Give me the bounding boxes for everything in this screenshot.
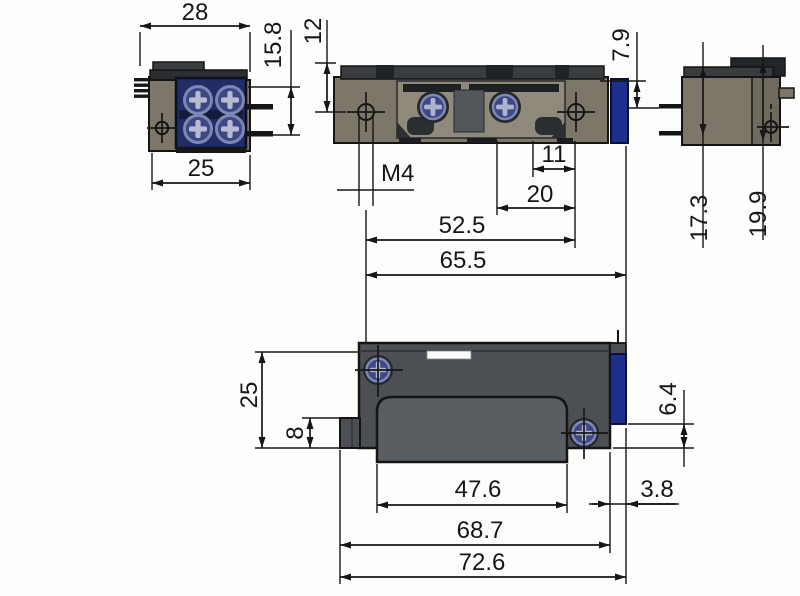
faceplate-strip bbox=[610, 354, 626, 424]
top-band-block bbox=[376, 65, 394, 79]
screw-icon bbox=[489, 91, 521, 123]
terminal-screw-icon bbox=[217, 87, 244, 114]
bottom-tick bbox=[467, 138, 497, 143]
center-block bbox=[454, 90, 484, 132]
lead-pin bbox=[659, 131, 683, 136]
dim-label-20: 20 bbox=[527, 181, 554, 208]
drawing-svg: 28 15.8 25 bbox=[0, 0, 800, 596]
terminal-screw-icon bbox=[185, 116, 212, 143]
dim-label-7-9: 7.9 bbox=[608, 28, 635, 61]
dim-label-11: 11 bbox=[542, 141, 567, 168]
dim-label-65-5: 65.5 bbox=[440, 247, 487, 274]
dim-label-25-top: 25 bbox=[188, 155, 215, 182]
dim-label-68-7: 68.7 bbox=[457, 517, 504, 544]
thread-label-m4: M4 bbox=[381, 160, 414, 187]
lead-pin bbox=[246, 104, 273, 110]
dim-label-52-5: 52.5 bbox=[439, 212, 486, 239]
faceplate-strip bbox=[611, 79, 628, 143]
dim-label-12: 12 bbox=[300, 18, 327, 45]
screw-icon bbox=[417, 91, 449, 123]
side-tab bbox=[779, 88, 794, 98]
top-view bbox=[334, 65, 628, 143]
terminal-screw-icon bbox=[217, 116, 244, 143]
panel-bar bbox=[403, 84, 461, 92]
bottom-tick bbox=[399, 138, 421, 143]
connector-front-view bbox=[134, 62, 273, 153]
dim-label-25-front: 25 bbox=[236, 382, 263, 409]
dim-label-47-6: 47.6 bbox=[455, 476, 502, 503]
right-section bbox=[752, 78, 779, 144]
dim-label-19-9: 19.9 bbox=[745, 191, 772, 238]
dim-label-17-3: 17.3 bbox=[686, 195, 713, 242]
left-lip bbox=[340, 418, 360, 448]
dim-label-6-4: 6.4 bbox=[655, 382, 682, 415]
terminal-screw-icon bbox=[185, 87, 212, 114]
dim-label-28: 28 bbox=[182, 0, 209, 26]
top-band-block bbox=[486, 65, 513, 79]
front-view bbox=[340, 330, 626, 462]
dim-label-8: 8 bbox=[282, 426, 309, 439]
technical-drawing: 28 15.8 25 bbox=[0, 0, 800, 596]
keeper-slot bbox=[377, 397, 567, 462]
terminal-bottom-bar bbox=[176, 147, 246, 153]
side-view bbox=[659, 58, 794, 145]
lead-pin bbox=[659, 104, 683, 109]
dim-label-3-8: 3.8 bbox=[640, 476, 673, 503]
dim-label-15-8: 15.8 bbox=[260, 22, 287, 69]
top-band-block bbox=[555, 65, 569, 79]
label-window bbox=[427, 351, 471, 359]
dim-label-72-6: 72.6 bbox=[459, 549, 506, 576]
